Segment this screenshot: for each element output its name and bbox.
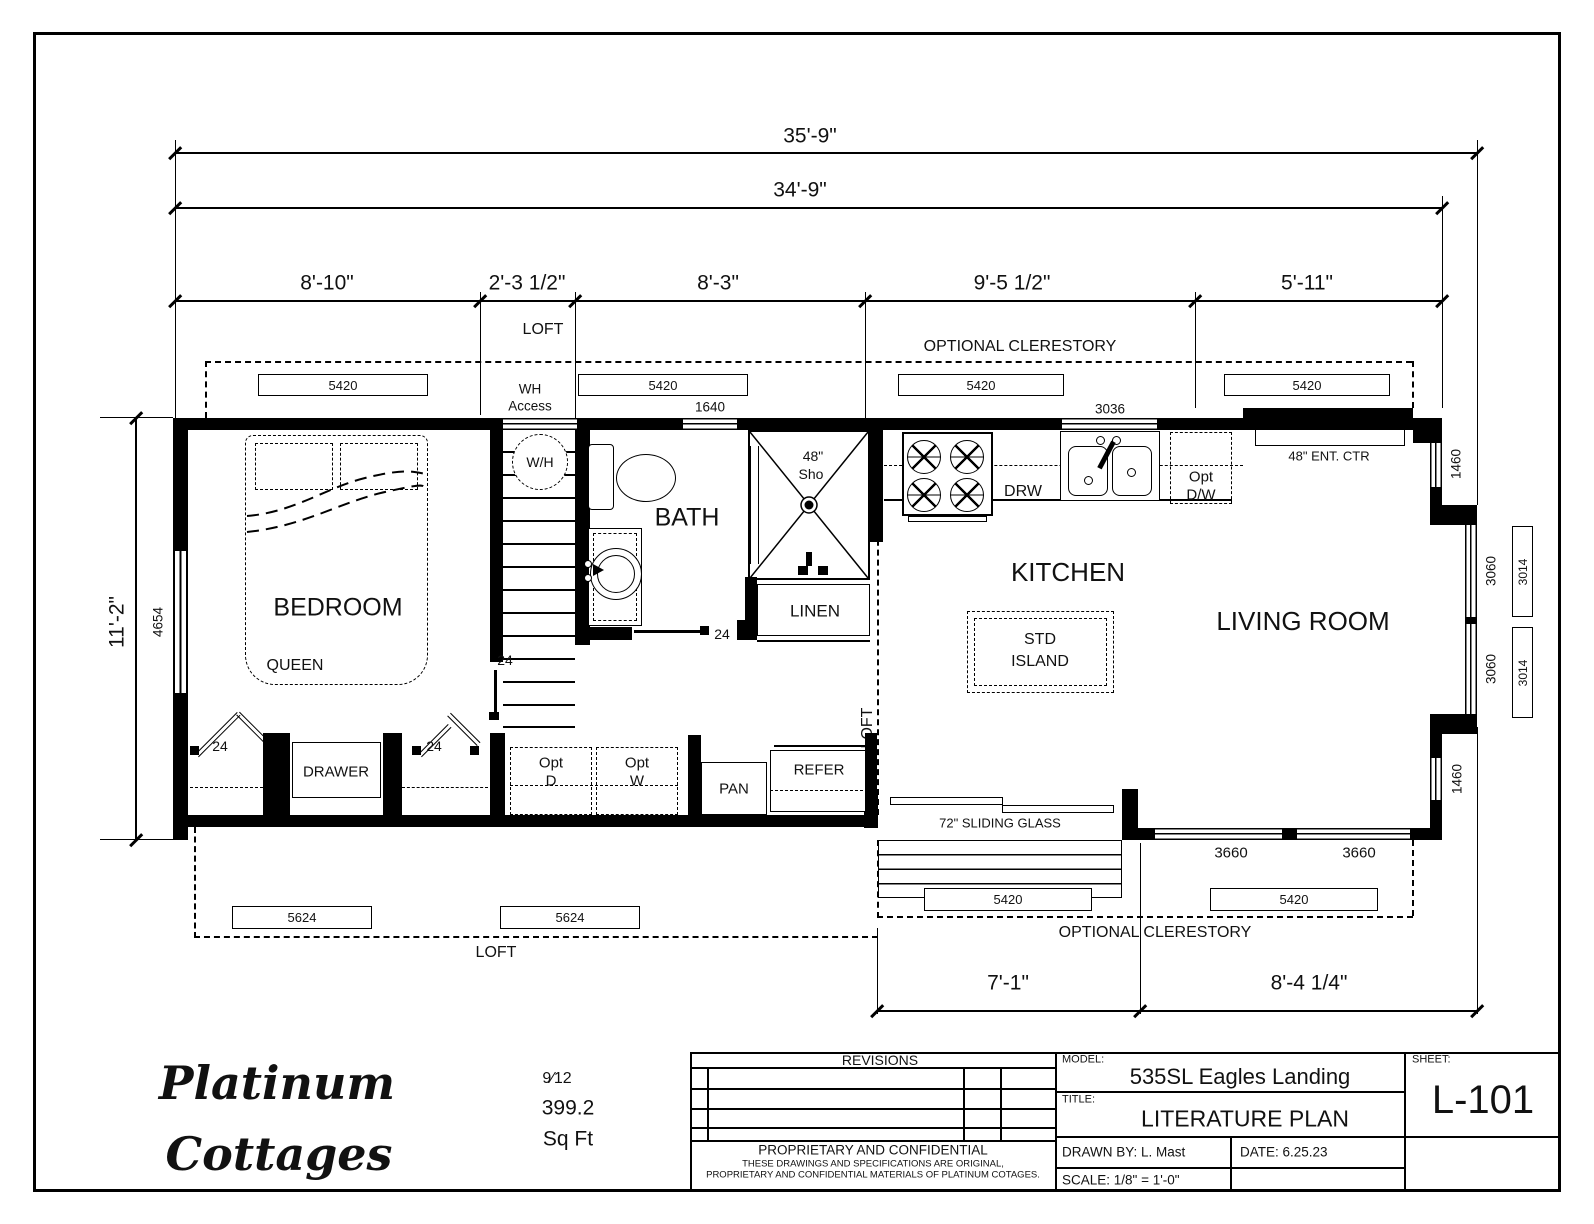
range-burner: [950, 478, 984, 512]
scale: SCALE: 1/8" = 1'-0": [1062, 1173, 1180, 1187]
opt-dw-label-2: D/W: [1186, 488, 1215, 503]
clerestory-window: 5420: [258, 374, 428, 396]
extension-line: [575, 292, 576, 418]
refrigerator-label: REFER: [794, 763, 845, 778]
opt-d-label-1: Opt: [539, 756, 563, 771]
revisions-grid: [1000, 1067, 1002, 1141]
window-1460-top-label: 1460: [1449, 449, 1463, 479]
loft-window: 5624: [500, 906, 640, 929]
clerestory-window: 5420: [1210, 888, 1378, 911]
proprietary-line2: PROPRIETARY AND CONFIDENTIAL MATERIALS O…: [706, 1170, 1040, 1180]
window-1460-top: [1430, 443, 1442, 487]
kitchen-label: KITCHEN: [1011, 559, 1125, 585]
refrigerator-dash: [770, 790, 868, 791]
dim-living: 5'-11": [1281, 273, 1333, 294]
clerestory-dashed-edge: [1412, 361, 1414, 408]
titleblock-divider: [1055, 1167, 1406, 1169]
loft-edge-line: [877, 430, 879, 815]
window-3036-label: 3036: [1095, 402, 1125, 416]
sliding-door-panel: [1002, 805, 1114, 813]
extension-line: [100, 417, 173, 418]
sheet-field-label: SHEET:: [1412, 1055, 1451, 1066]
stair-edge: [503, 726, 575, 728]
entertainment-center: [1255, 429, 1405, 446]
queen-label: QUEEN: [267, 658, 324, 674]
dim-kitchen: 9'-5 1/2": [974, 273, 1051, 294]
sliding-door-panel: [890, 797, 1003, 805]
closet-door-left-label: 24: [212, 739, 228, 753]
window-3014-box-bottom: 3014: [1512, 627, 1533, 718]
kitchen-island-inner: [974, 618, 1107, 686]
opt-dw-label-1: Opt: [1189, 470, 1213, 485]
ent-ctr-label: 48" ENT. CTR: [1288, 450, 1369, 463]
dim-bath: 8'-3": [697, 273, 739, 294]
titleblock-divider: [1230, 1137, 1232, 1192]
sink-faucet: [1096, 436, 1105, 445]
window-3060-bottom-label: 3060: [1484, 654, 1498, 684]
titleblock-divider: [1404, 1052, 1406, 1192]
bath-door-label: 24: [714, 627, 730, 641]
loft-top-label: LOFT: [523, 322, 564, 338]
dim-bedroom: 8'-10": [300, 273, 354, 294]
island-label-2: ISLAND: [1011, 654, 1069, 670]
closet-partition: [383, 733, 402, 815]
wall-top-entry: [1243, 408, 1413, 430]
shower-door: [750, 446, 759, 564]
titleblock-divider: [1055, 1091, 1406, 1093]
loft-window: 5624: [232, 906, 372, 929]
toilet-tank: [588, 444, 614, 510]
revisions-grid: [690, 1088, 1057, 1090]
dim-width: 11'-2": [107, 596, 128, 648]
clerestory-window: 5420: [898, 374, 1064, 396]
range-burner: [907, 440, 941, 474]
living-room-label: LIVING ROOM: [1216, 608, 1389, 634]
drawing-sheet: 35'-9" 34'-9" 8'-10" 2'-3 1/2" 8'-3" 9'-…: [0, 0, 1594, 1224]
refrigerator: [770, 750, 868, 812]
dim-line-overall-bay: [175, 152, 1477, 154]
bay-mullion: [1465, 617, 1477, 624]
door-hinge: [272, 746, 281, 755]
loft-bottom-label: LOFT: [476, 945, 517, 961]
title-field-label: TITLE:: [1062, 1095, 1095, 1106]
wh-access-label-2: Access: [508, 399, 552, 413]
loft-dashed-edge: [205, 361, 207, 418]
wall-bottom-right: [1122, 828, 1155, 840]
window-3014-top-label: 3014: [1517, 559, 1529, 586]
wall-top: [1157, 418, 1250, 430]
window-3660-left: [1155, 828, 1282, 840]
bedroom-door-leaf: [494, 670, 497, 718]
window-mullion: [1282, 828, 1297, 840]
pantry-label: PAN: [719, 782, 749, 797]
range-burner: [907, 478, 941, 512]
bath-wall-south: [575, 627, 632, 640]
dim-line-overall: [175, 207, 1442, 209]
window-1640: [683, 418, 737, 430]
opt-w-label-2: W: [630, 774, 644, 789]
stair-wall-left: [490, 430, 503, 662]
loft-clerestory-dashed-line: [205, 361, 1412, 363]
sink-drain: [1127, 468, 1136, 477]
washer-dryer-dash: [510, 785, 678, 786]
shower-valve: [798, 566, 808, 575]
shower-valve: [818, 566, 828, 575]
window-3014-box-top: 3014: [1512, 526, 1533, 617]
roof-pitch: 9⁄12: [542, 1071, 571, 1087]
date: DATE: 6.25.23: [1240, 1145, 1328, 1159]
extension-line: [1477, 140, 1478, 505]
closet-partition: [490, 733, 505, 815]
range-handle: [908, 516, 987, 522]
wall-bottom-left: [173, 815, 877, 827]
loft-dashed-line: [194, 936, 878, 938]
clerestory-window: 5420: [924, 888, 1092, 911]
door-hinge: [489, 712, 499, 720]
dim-line-width: [135, 418, 137, 840]
wh-access-opening: [503, 418, 577, 430]
revisions-grid: [963, 1067, 965, 1141]
window-3060-top-label: 3060: [1484, 556, 1498, 586]
proprietary-title: PROPRIETARY AND CONFIDENTIAL: [758, 1143, 988, 1157]
extension-line: [877, 928, 878, 1014]
window-3660-right-label: 3660: [1342, 846, 1375, 861]
refrigerator-handle: [774, 745, 866, 747]
dim-line-segments: [175, 300, 1442, 302]
wall-left: [173, 418, 188, 551]
clerestory-window: 5420: [578, 374, 748, 396]
range-burner: [950, 440, 984, 474]
pantry-wall: [688, 735, 701, 815]
door-hinge: [700, 626, 709, 635]
extension-line: [175, 140, 176, 418]
window-1460-bottom: [1430, 758, 1442, 800]
bay-wall-top: [1430, 505, 1477, 525]
wall-bottom-right: [1410, 828, 1442, 840]
door-hinge: [190, 746, 199, 755]
dim-line-bottom: [877, 1010, 1477, 1012]
wall-top: [577, 418, 683, 430]
square-footage-unit: Sq Ft: [543, 1129, 593, 1150]
titleblock-border: [690, 1052, 692, 1192]
dim-overall: 34'-9": [773, 180, 827, 201]
bath-door-leaf: [634, 630, 702, 633]
wall-right: [1430, 487, 1442, 507]
bath-label: BATH: [655, 506, 720, 531]
extension-line: [1195, 292, 1196, 408]
bed-fold-lines: [245, 468, 428, 538]
clerestory-dashed-edge: [1412, 840, 1414, 916]
faucet-handle: [584, 560, 592, 568]
model-field-label: MODEL:: [1062, 1055, 1104, 1066]
wall-corner-ne: [1413, 418, 1442, 443]
dim-patio: 8'-4 1/4": [1271, 973, 1348, 994]
window-4654: [173, 551, 188, 693]
bedroom-label: BEDROOM: [273, 596, 402, 621]
kitchen-wall-stub: [865, 733, 877, 815]
sink-bowl-left: [1068, 446, 1108, 496]
sink-drain: [1084, 476, 1093, 485]
linen-front: [757, 640, 870, 642]
bay-wall-bottom: [1430, 714, 1477, 734]
toilet-bowl: [616, 454, 676, 502]
closet-shelf-line: [402, 787, 488, 788]
window-3014-bottom-label: 3014: [1517, 660, 1529, 687]
window-4654-label: 4654: [151, 607, 165, 637]
clerestory-top-label: OPTIONAL CLERESTORY: [924, 339, 1117, 355]
wh-access-label-1: WH: [519, 382, 542, 396]
slider-jamb-right: [1122, 789, 1138, 829]
window-1460-bottom-label: 1460: [1450, 764, 1464, 794]
window-3660-left-label: 3660: [1214, 846, 1247, 861]
revisions-grid: [690, 1108, 1057, 1110]
bedroom-door-label: 24: [497, 653, 513, 667]
logo-cottages: Cottages: [166, 1127, 393, 1181]
opt-d-label-2: D: [546, 774, 557, 789]
dim-overall-bay: 35'-9": [783, 126, 837, 147]
clerestory-window: 5420: [1224, 374, 1390, 396]
window-3036: [1062, 418, 1157, 430]
door-hinge: [412, 746, 421, 755]
logo-platinum: Platinum: [159, 1056, 395, 1110]
shower-valve: [806, 552, 812, 566]
dim-slider: 7'-1": [987, 973, 1029, 994]
water-heater-label: W/H: [526, 455, 553, 469]
revisions-grid: [707, 1067, 709, 1141]
linen-wall: [745, 577, 757, 640]
dim-stairs: 2'-3 1/2": [489, 273, 566, 294]
revisions-header: REVISIONS: [842, 1053, 918, 1067]
faucet-handle: [584, 574, 592, 582]
opt-w-label-1: Opt: [625, 756, 649, 771]
linen-label: LINEN: [790, 603, 840, 620]
loft-dashed-edge: [194, 827, 196, 938]
shower-label-2: Sho: [797, 467, 826, 481]
square-footage: 399.2: [542, 1098, 595, 1119]
drawn-by: DRAWN BY: L. Mast: [1062, 1145, 1185, 1159]
window-3060-bottom: [1465, 624, 1477, 714]
clerestory-dashed-line: [877, 916, 1413, 918]
shower-label-1: 48": [801, 449, 826, 463]
wall-top: [173, 418, 503, 430]
sliding-door-label: 72" SLIDING GLASS: [939, 817, 1061, 830]
drawer-label: DRAWER: [303, 765, 369, 780]
closet-shelf-line: [190, 787, 263, 788]
closet-door-right-label: 24: [426, 739, 442, 753]
extension-line: [100, 839, 173, 840]
wall-right: [1430, 734, 1442, 758]
extension-line: [1442, 196, 1443, 408]
model-value: 535SL Eagles Landing: [1130, 1066, 1351, 1088]
clerestory-dashed-edge: [877, 840, 879, 918]
extension-line: [480, 292, 481, 415]
window-1640-label: 1640: [695, 400, 725, 414]
title-value: LITERATURE PLAN: [1141, 1108, 1349, 1131]
sheet-number: L-101: [1432, 1080, 1534, 1120]
island-label-1: STD: [1024, 632, 1056, 648]
door-hinge: [470, 746, 479, 755]
extension-line: [1140, 843, 1141, 1014]
extension-line: [865, 292, 866, 418]
extension-line: [1477, 727, 1478, 1014]
revisions-grid: [690, 1127, 1057, 1129]
titleblock-divider: [1055, 1052, 1057, 1192]
window-3660-right: [1297, 828, 1410, 840]
faucet-spout: [593, 564, 604, 576]
drawer-bank-label: DRW: [1004, 484, 1042, 500]
titleblock-divider: [1055, 1136, 1561, 1138]
clerestory-bottom-label: OPTIONAL CLERESTORY: [1059, 925, 1252, 941]
proprietary-line1: THESE DRAWINGS AND SPECIFICATIONS ARE OR…: [742, 1159, 1004, 1169]
window-3060-top: [1465, 525, 1477, 617]
wall-top: [737, 418, 1062, 430]
